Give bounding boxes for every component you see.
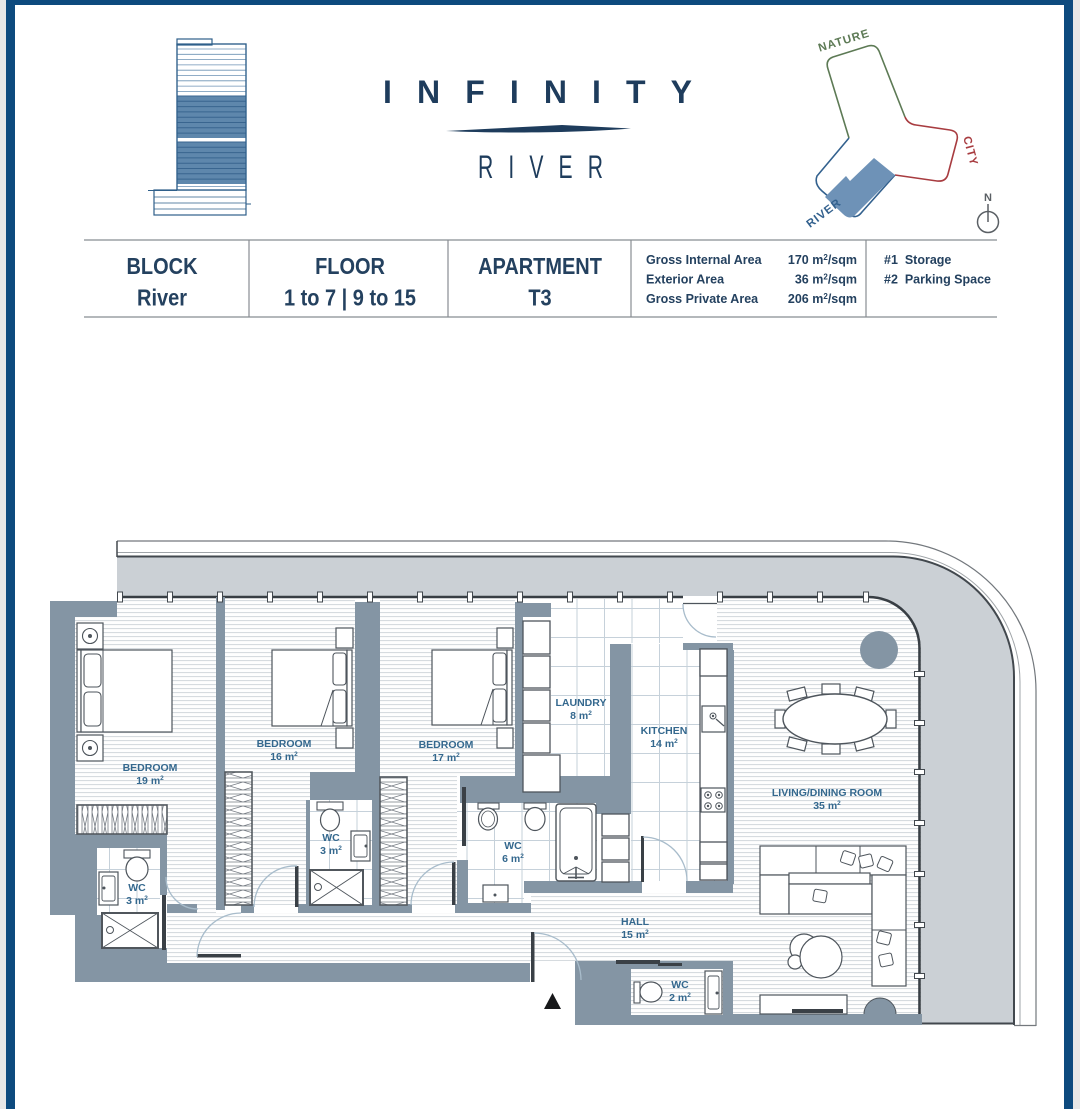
svg-text:16 m2: 16 m2 bbox=[270, 751, 298, 763]
svg-text:#1 Storage: #1 Storage bbox=[884, 253, 951, 267]
svg-text:NATURE: NATURE bbox=[817, 28, 871, 55]
svg-text:River: River bbox=[137, 284, 187, 311]
svg-text:35 m2: 35 m2 bbox=[813, 800, 841, 812]
svg-text:RIVER: RIVER bbox=[805, 197, 844, 231]
svg-text:36 m2/sqm: 36 m2/sqm bbox=[795, 273, 857, 287]
svg-text:LIVING/DINING ROOM: LIVING/DINING ROOM bbox=[772, 787, 883, 799]
svg-text:BLOCK: BLOCK bbox=[127, 252, 198, 279]
svg-text:Gross Private Area: Gross Private Area bbox=[646, 292, 759, 306]
svg-text:BEDROOM: BEDROOM bbox=[257, 738, 312, 750]
svg-text:WC: WC bbox=[128, 882, 146, 894]
svg-text:T3: T3 bbox=[528, 284, 551, 311]
svg-text:Gross Internal Area: Gross Internal Area bbox=[646, 253, 763, 267]
svg-text:HALL: HALL bbox=[621, 916, 650, 928]
svg-text:WC: WC bbox=[322, 832, 340, 844]
svg-text:Exterior Area: Exterior Area bbox=[646, 273, 725, 287]
svg-text:APARTMENT: APARTMENT bbox=[478, 252, 602, 279]
svg-text:WC: WC bbox=[671, 979, 689, 991]
svg-text:N: N bbox=[984, 192, 992, 204]
svg-text:FLOOR: FLOOR bbox=[315, 252, 385, 279]
svg-text:WC: WC bbox=[504, 840, 522, 852]
svg-text:BEDROOM: BEDROOM bbox=[123, 762, 178, 774]
svg-text:KITCHEN: KITCHEN bbox=[641, 725, 688, 737]
svg-text:206 m2/sqm: 206 m2/sqm bbox=[788, 292, 857, 306]
svg-text:BEDROOM: BEDROOM bbox=[419, 739, 474, 751]
svg-text:INFINITY: INFINITY bbox=[383, 74, 717, 110]
svg-text:14 m2: 14 m2 bbox=[650, 738, 678, 750]
svg-text:CITY: CITY bbox=[960, 135, 979, 167]
svg-text:170 m2/sqm: 170 m2/sqm bbox=[788, 253, 857, 267]
svg-text:19 m2: 19 m2 bbox=[136, 775, 164, 787]
svg-text:15 m2: 15 m2 bbox=[621, 929, 649, 941]
svg-text:1 to 7 | 9 to 15: 1 to 7 | 9 to 15 bbox=[284, 284, 416, 311]
svg-text:RIVER: RIVER bbox=[478, 148, 618, 185]
svg-text:17 m2: 17 m2 bbox=[432, 752, 460, 764]
svg-text:#2 Parking Space: #2 Parking Space bbox=[884, 273, 991, 287]
svg-text:LAUNDRY: LAUNDRY bbox=[556, 697, 607, 709]
